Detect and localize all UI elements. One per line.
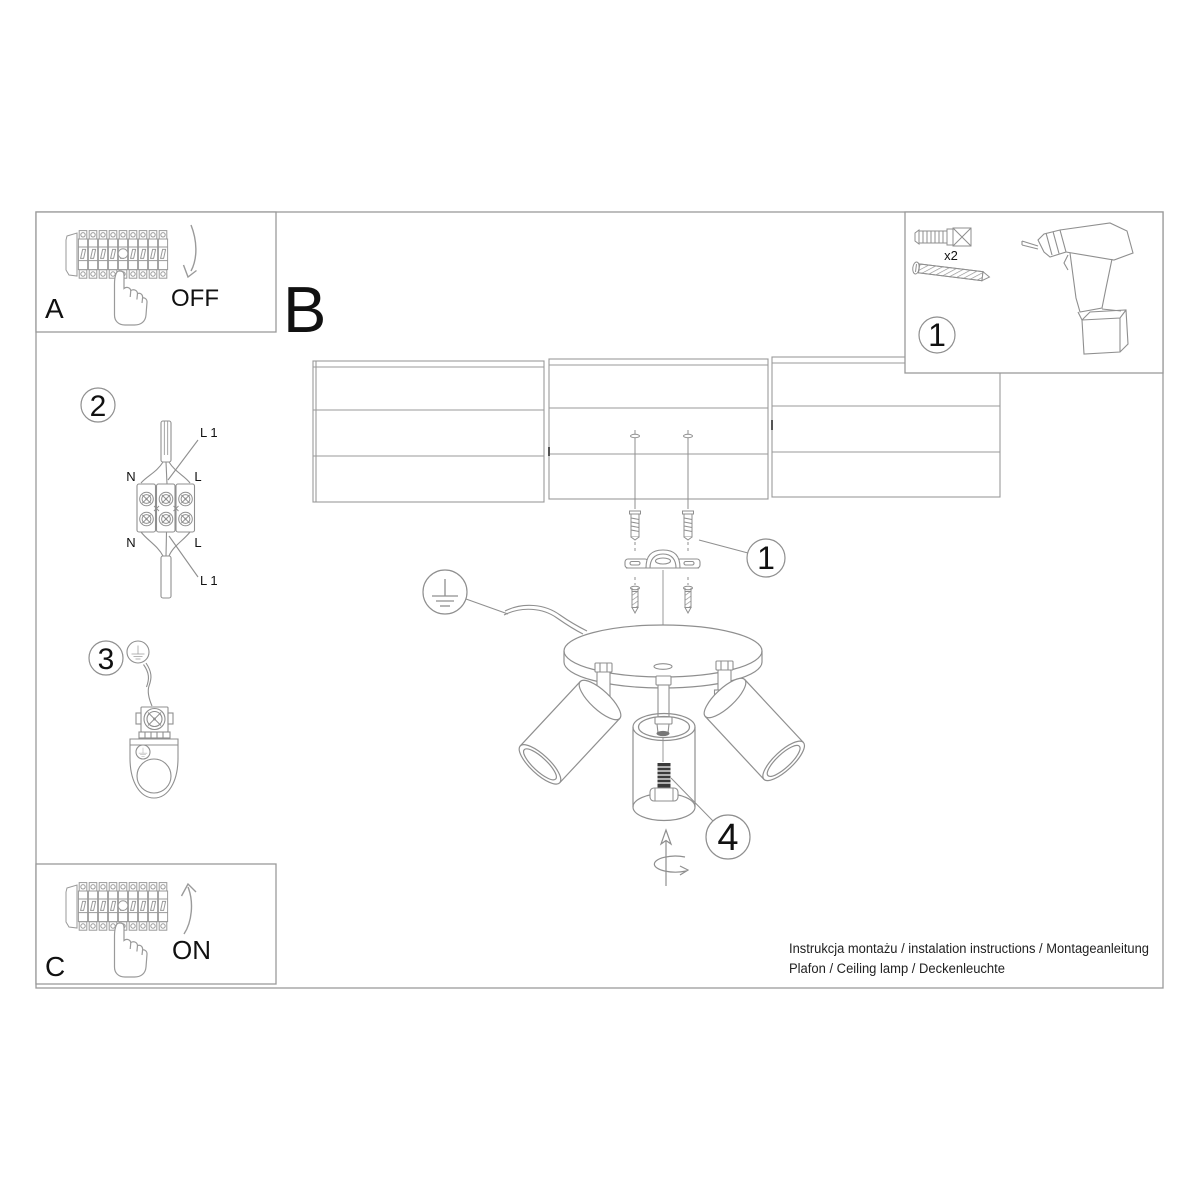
section-a-power-off: OFF A	[36, 212, 276, 332]
wiring-step: 2 L 1 N L N L L 1	[81, 388, 218, 598]
ceiling-panel-left	[313, 361, 544, 502]
mounting-hardware: 1	[625, 511, 785, 613]
screw-icon	[631, 586, 693, 613]
wire-label-bottom-n: N	[126, 535, 135, 550]
step-badge-tools: 1	[919, 317, 955, 353]
terminal-block-illustration	[137, 421, 198, 598]
svg-text:3: 3	[98, 643, 115, 676]
on-label: ON	[172, 935, 211, 965]
step-badge-adjust: 4	[706, 815, 750, 859]
earth-clamp-illustration	[130, 663, 178, 798]
wire-label-bottom-l1: L 1	[200, 573, 218, 588]
svg-text:2: 2	[90, 390, 107, 423]
tools-box: x2 1	[905, 212, 1163, 373]
section-b-label: B	[283, 273, 326, 346]
wall-anchor-icon	[630, 511, 694, 540]
instruction-sheet: OFF A B	[0, 0, 1200, 1200]
wall-plug-icon	[915, 228, 971, 246]
step-badge-bracket: 1	[747, 539, 785, 577]
svg-text:1: 1	[928, 317, 946, 353]
wire-label-bottom-l: L	[194, 535, 201, 550]
bracket-leader-line	[699, 540, 748, 553]
ground-symbol-icon	[423, 570, 467, 614]
svg-text:4: 4	[717, 817, 738, 859]
mounting-bracket	[625, 550, 700, 568]
wire-label-top-n: N	[126, 469, 135, 484]
ground-leader-line	[466, 599, 508, 614]
ceiling-panels	[313, 357, 1000, 502]
footer-line-2: Plafon / Ceiling lamp / Deckenleuchte	[789, 961, 1005, 976]
step-badge-ground: 3	[89, 641, 123, 676]
svg-text:1: 1	[757, 540, 775, 576]
step-badge-wiring: 2	[81, 388, 115, 423]
rotation-arrow-icon	[654, 830, 688, 886]
drill-guide-lines	[631, 430, 693, 509]
ceiling-panel-right	[772, 357, 1000, 497]
wire-label-top-l1: L 1	[200, 425, 218, 440]
set-screw	[650, 763, 678, 801]
footer: Instrukcja montażu / instalation instruc…	[789, 941, 1149, 976]
supply-wire	[504, 605, 587, 634]
ground-symbol-icon	[127, 641, 149, 663]
section-a-label: A	[45, 293, 64, 324]
off-label: OFF	[171, 285, 219, 312]
section-c-power-on: ON C	[36, 864, 276, 984]
ground-step: 3	[89, 641, 178, 798]
section-c-label: C	[45, 951, 65, 982]
footer-line-1: Instrukcja montażu / instalation instruc…	[789, 941, 1149, 956]
breaker-panel-illustration	[66, 883, 168, 931]
anchor-qty-label: x2	[944, 248, 958, 263]
ceiling-panel-middle	[549, 359, 768, 499]
lamp-assembly: 4	[423, 570, 810, 886]
wire-label-top-l: L	[194, 469, 201, 484]
breaker-panel-illustration	[66, 231, 168, 279]
